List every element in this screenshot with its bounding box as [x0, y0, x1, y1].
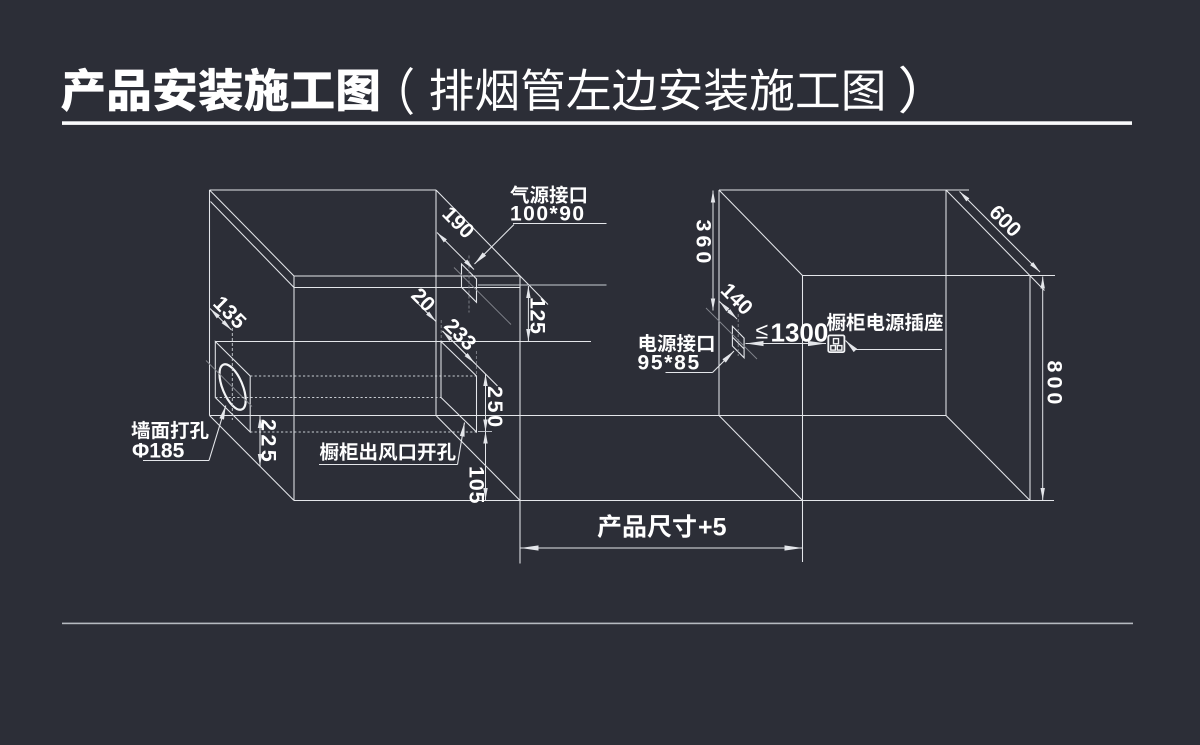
svg-text:Φ185: Φ185: [132, 440, 185, 463]
svg-text:190: 190: [437, 202, 478, 243]
svg-text:+5: +5: [698, 514, 727, 542]
svg-text:135: 135: [208, 292, 250, 334]
svg-text:20: 20: [406, 284, 439, 317]
svg-text:250: 250: [483, 386, 507, 430]
svg-text:140: 140: [716, 279, 757, 320]
svg-text:≤: ≤: [756, 318, 769, 344]
svg-text:800: 800: [1043, 361, 1067, 409]
svg-text:100*90: 100*90: [510, 203, 586, 226]
svg-text:125: 125: [526, 297, 550, 334]
svg-text:233: 233: [439, 314, 480, 355]
svg-text:95*85: 95*85: [638, 352, 701, 375]
svg-text:225: 225: [257, 419, 281, 465]
svg-text:105: 105: [465, 466, 489, 504]
svg-text:1300: 1300: [771, 318, 829, 348]
svg-text:360: 360: [692, 220, 716, 268]
